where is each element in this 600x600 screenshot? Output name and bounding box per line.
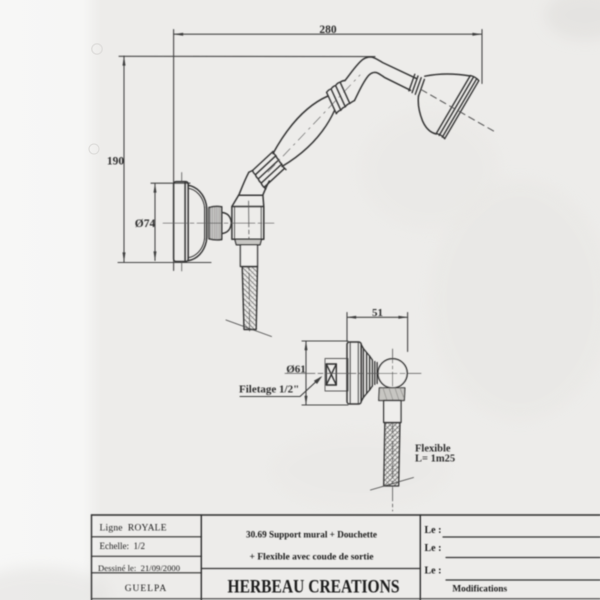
svg-text:Ligne ROYALE: Ligne ROYALE [100, 524, 167, 534]
svg-text:HERBEAU CREATIONS: HERBEAU CREATIONS [228, 577, 400, 598]
svg-text:Echelle: 1/2: Echelle: 1/2 [100, 541, 145, 551]
svg-text:Dessiné le: 21/09/2000: Dessiné le: 21/09/2000 [98, 563, 180, 573]
svg-text:280: 280 [319, 24, 337, 36]
svg-text:Modifications: Modifications [452, 585, 507, 595]
svg-text:30.69 Support mural + Douchett: 30.69 Support mural + Douchette [246, 530, 378, 541]
svg-text:Le :: Le : [425, 566, 442, 577]
svg-text:190: 190 [107, 156, 125, 168]
svg-text:Le :: Le : [425, 543, 442, 554]
svg-text:51: 51 [372, 307, 383, 319]
svg-text:Ø74: Ø74 [135, 218, 156, 230]
svg-text:GUELPA: GUELPA [125, 584, 168, 594]
svg-text:L= 1m25: L= 1m25 [415, 454, 455, 465]
svg-text:Filetage 1/2": Filetage 1/2" [239, 384, 299, 396]
svg-text:+ Flexible avec coude de sorti: + Flexible avec coude de sortie [250, 552, 375, 563]
svg-text:Le :: Le : [425, 525, 442, 536]
